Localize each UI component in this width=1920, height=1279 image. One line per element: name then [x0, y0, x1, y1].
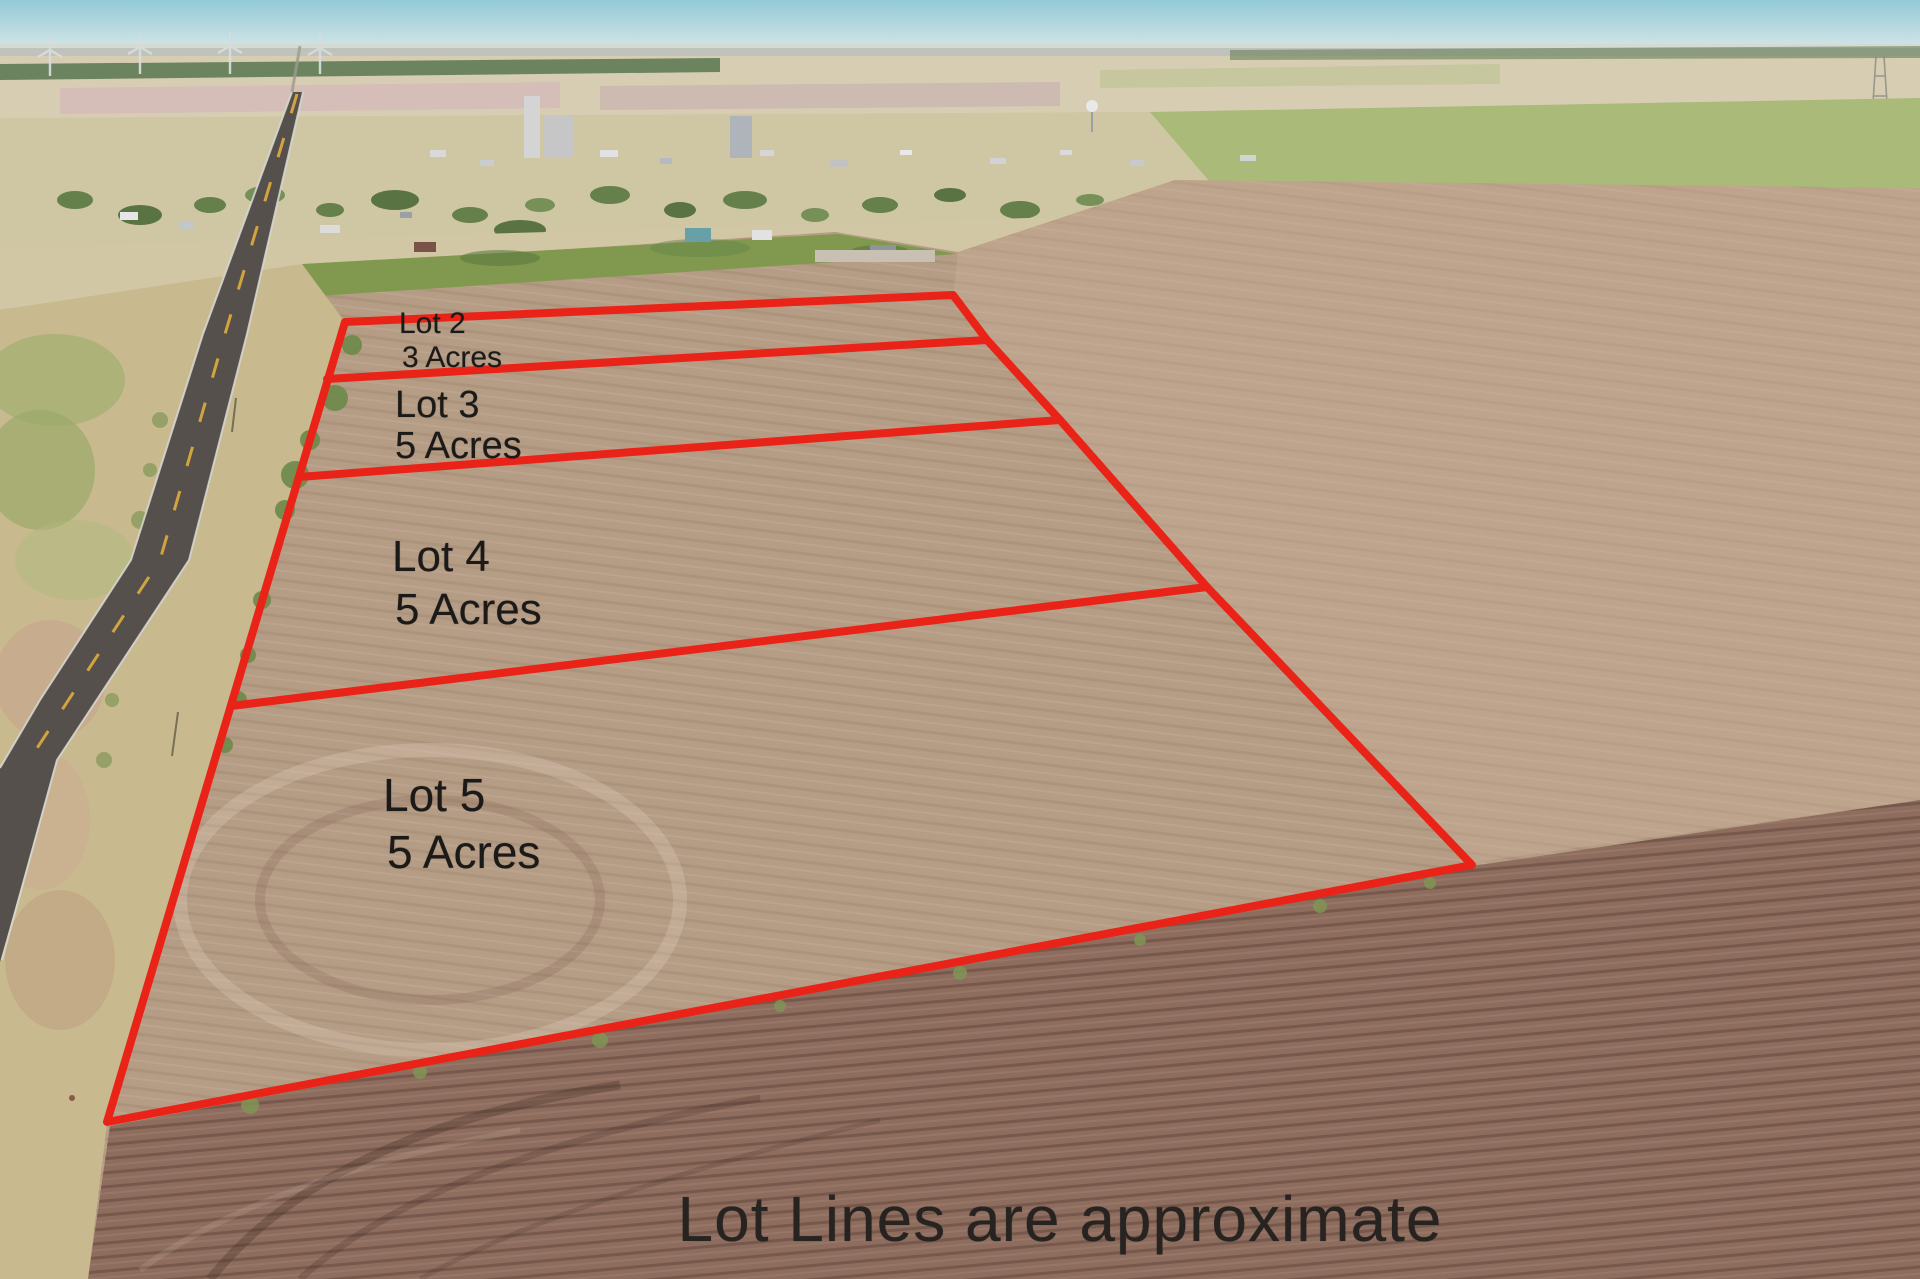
building [660, 158, 672, 164]
tree [194, 197, 226, 213]
scrub [342, 335, 362, 355]
scrub [592, 1032, 608, 1048]
lot2-size: 3 Acres [402, 343, 502, 373]
disclaimer-text: Lot Lines are approximate [595, 1182, 1525, 1256]
tree [801, 208, 829, 222]
building [1060, 150, 1072, 155]
dirt-patch [5, 890, 115, 1030]
farm-building [414, 242, 436, 252]
lot5-name: Lot 5 [383, 769, 485, 821]
lot2-name: Lot 2 [399, 307, 466, 340]
farm-building [752, 230, 772, 240]
distant-mauve-strip2 [600, 82, 1060, 110]
lot4-label: Lot 4 5 Acres [392, 535, 542, 632]
building [320, 225, 340, 233]
lot3-label: Lot 3 5 Acres [395, 386, 522, 465]
scrub [152, 412, 168, 428]
building [180, 222, 194, 229]
tree [57, 191, 93, 209]
scrub [1424, 877, 1436, 889]
building [1240, 155, 1256, 161]
sky [0, 0, 1920, 48]
tree [1000, 201, 1040, 219]
lot5-label: Lot 5 5 Acres [383, 772, 540, 875]
building [830, 160, 848, 167]
tree [316, 203, 344, 217]
building [1130, 160, 1144, 166]
building [600, 150, 618, 157]
tree [452, 207, 488, 223]
farm-building-row [815, 250, 935, 262]
tree [664, 202, 696, 218]
person-figure [69, 1095, 75, 1101]
scrub [774, 1000, 786, 1012]
lot2-label: Lot 2 3 Acres [399, 309, 502, 373]
scrub [1134, 934, 1146, 946]
grain-elevator [524, 96, 540, 158]
tree [934, 188, 966, 202]
building [900, 150, 912, 155]
building [430, 150, 446, 157]
scrub [105, 693, 119, 707]
building [760, 150, 774, 156]
water-tower-tank [1086, 100, 1098, 112]
lot4-size: 5 Acres [395, 588, 542, 632]
building [480, 160, 494, 166]
tree [371, 190, 419, 210]
building [400, 212, 412, 218]
lot5-size: 5 Acres [387, 829, 540, 875]
tree [525, 198, 555, 212]
lot3-size: 5 Acres [395, 427, 522, 465]
lot4-name: Lot 4 [392, 532, 490, 581]
tree [723, 191, 767, 209]
scrub [96, 752, 112, 768]
farm-building-teal [685, 228, 711, 242]
tree [1076, 194, 1104, 206]
tree [590, 186, 630, 204]
scrub [953, 966, 967, 980]
aerial-photo: Lot 2 3 Acres Lot 3 5 Acres Lot 4 5 Acre… [0, 0, 1920, 1279]
building [990, 158, 1006, 164]
scrub [1313, 899, 1327, 913]
crop-blotch [460, 250, 540, 266]
building [120, 212, 138, 220]
scrub [143, 463, 157, 477]
grain-bins [730, 116, 752, 158]
photo-scene [0, 0, 1920, 1279]
lot3-name: Lot 3 [395, 384, 480, 426]
tree [862, 197, 898, 213]
grain-elevator [544, 116, 574, 158]
